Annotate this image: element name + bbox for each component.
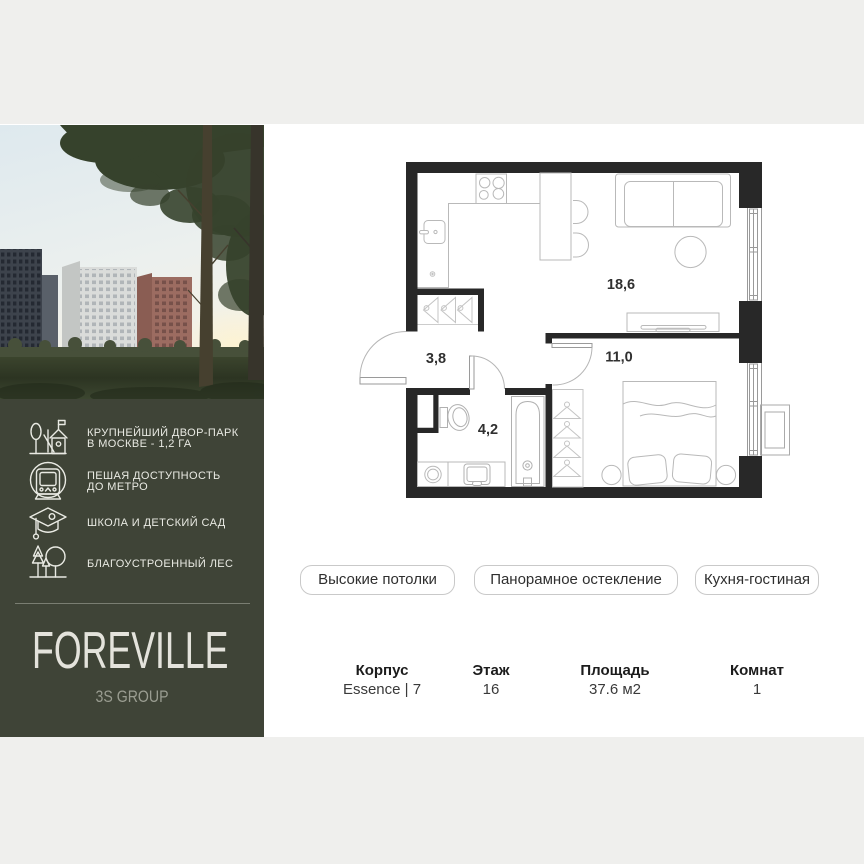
svg-text:3S GROUP: 3S GROUP <box>96 687 169 706</box>
svg-text:4,2: 4,2 <box>478 422 498 438</box>
svg-text:FOREVILLE: FOREVILLE <box>32 621 229 679</box>
svg-text:18,6: 18,6 <box>607 277 635 293</box>
svg-text:11,0: 11,0 <box>605 350 632 366</box>
svg-text:3,8: 3,8 <box>426 351 446 367</box>
